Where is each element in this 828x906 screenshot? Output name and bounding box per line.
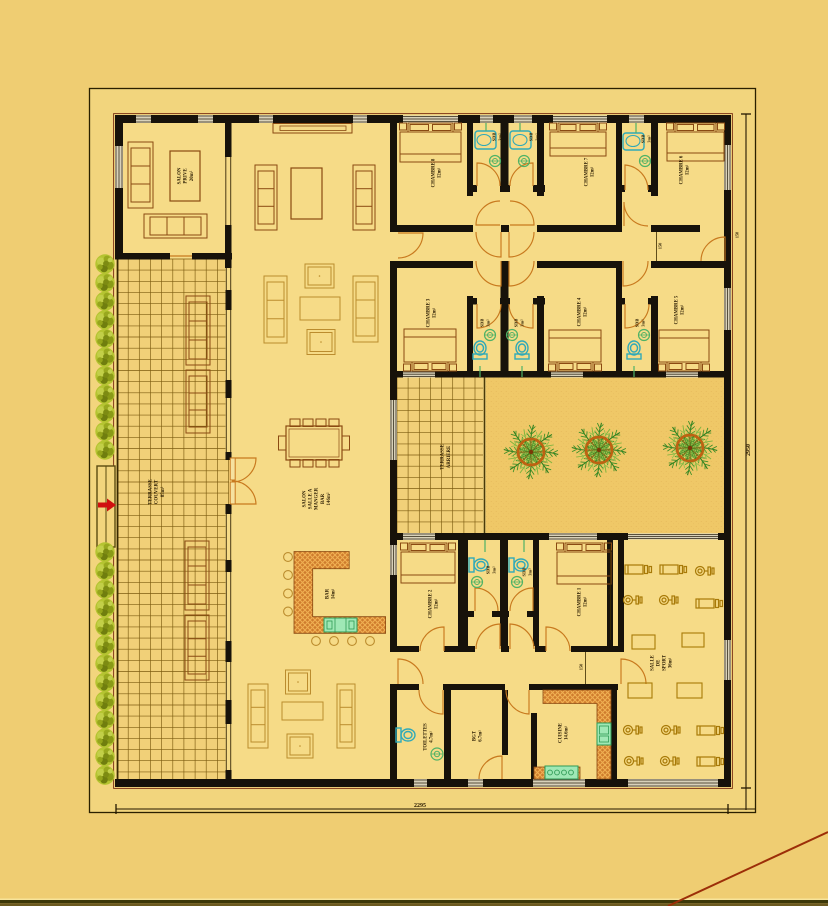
svg-text:ARRIERE: ARRIERE <box>447 445 452 468</box>
svg-text:2295: 2295 <box>414 803 426 809</box>
svg-text:3m²: 3m² <box>640 319 645 327</box>
svg-text:SALLE: SALLE <box>651 655 656 671</box>
svg-text:150: 150 <box>579 663 584 670</box>
svg-text:SDB: SDB <box>480 319 485 328</box>
svg-text:TERRASSE: TERRASSE <box>149 478 154 505</box>
svg-text:3m²: 3m² <box>528 568 533 576</box>
svg-text:SDB: SDB <box>522 568 527 577</box>
svg-text:SDB: SDB <box>635 319 640 328</box>
svg-text:CUISINE: CUISINE <box>559 723 564 743</box>
svg-text:BAR: BAR <box>321 493 326 504</box>
svg-text:3m²: 3m² <box>519 319 524 327</box>
svg-text:3m²: 3m² <box>485 319 490 327</box>
svg-text:SALLE A: SALLE A <box>309 488 314 509</box>
svg-text:4.7m²: 4.7m² <box>429 731 435 743</box>
svg-text:14.6m²: 14.6m² <box>564 726 570 740</box>
svg-text:CHAMBRE 4: CHAMBRE 4 <box>578 297 583 326</box>
svg-text:DE: DE <box>657 660 662 667</box>
svg-text:SDB: SDB <box>529 133 534 142</box>
svg-text:SDB: SDB <box>492 133 497 142</box>
svg-text:85m²: 85m² <box>160 486 166 497</box>
svg-text:CHAMBRE 2: CHAMBRE 2 <box>429 589 434 618</box>
svg-text:3m²: 3m² <box>534 133 539 141</box>
svg-text:12m²: 12m² <box>685 164 691 175</box>
svg-text:12m²: 12m² <box>583 306 589 317</box>
svg-text:PRIVE: PRIVE <box>184 168 189 184</box>
svg-text:SDB: SDB <box>641 135 646 144</box>
svg-text:MANGER: MANGER <box>315 487 320 510</box>
svg-text:12m²: 12m² <box>583 596 589 607</box>
svg-text:SDB: SDB <box>486 566 491 575</box>
svg-text:CHAMBRE 5: CHAMBRE 5 <box>675 295 680 324</box>
svg-text:14m²: 14m² <box>331 588 337 599</box>
svg-text:12m²: 12m² <box>590 166 596 177</box>
svg-text:SALON: SALON <box>178 167 183 184</box>
svg-text:TERRASSE: TERRASSE <box>441 443 446 470</box>
svg-text:20m²: 20m² <box>189 170 195 181</box>
svg-text:CHAMBRE 7: CHAMBRE 7 <box>585 157 590 186</box>
svg-text:SALON: SALON <box>303 490 308 507</box>
svg-text:3m²: 3m² <box>491 566 496 574</box>
svg-text:3m²: 3m² <box>646 135 651 143</box>
svg-text:146m²: 146m² <box>326 492 332 505</box>
svg-text:2950: 2950 <box>746 444 752 456</box>
svg-text:CHAMBRE 3: CHAMBRE 3 <box>427 298 432 327</box>
svg-text:BAR: BAR <box>326 588 331 599</box>
svg-text:CHAMBRE 1: CHAMBRE 1 <box>578 587 583 616</box>
svg-text:SPORT: SPORT <box>663 654 668 671</box>
svg-text:12m²: 12m² <box>680 304 686 315</box>
svg-text:TOILETTES: TOILETTES <box>424 723 429 751</box>
svg-text:300: 300 <box>608 588 613 595</box>
svg-text:6.7m²: 6.7m² <box>478 730 484 742</box>
svg-text:COUVERT: COUVERT <box>155 479 160 504</box>
svg-text:12m²: 12m² <box>437 167 443 178</box>
svg-text:150: 150 <box>658 242 663 249</box>
svg-text:12m²: 12m² <box>432 307 438 318</box>
svg-text:12m²: 12m² <box>434 598 440 609</box>
svg-text:SDB: SDB <box>514 319 519 328</box>
svg-text:CHAMBRE 8: CHAMBRE 8 <box>432 158 437 187</box>
svg-text:150: 150 <box>735 232 740 238</box>
svg-text:CHAMBRE 6: CHAMBRE 6 <box>680 155 685 184</box>
svg-text:BGT: BGT <box>473 730 478 741</box>
svg-text:36m²: 36m² <box>668 657 674 668</box>
svg-text:3m²: 3m² <box>497 133 502 141</box>
